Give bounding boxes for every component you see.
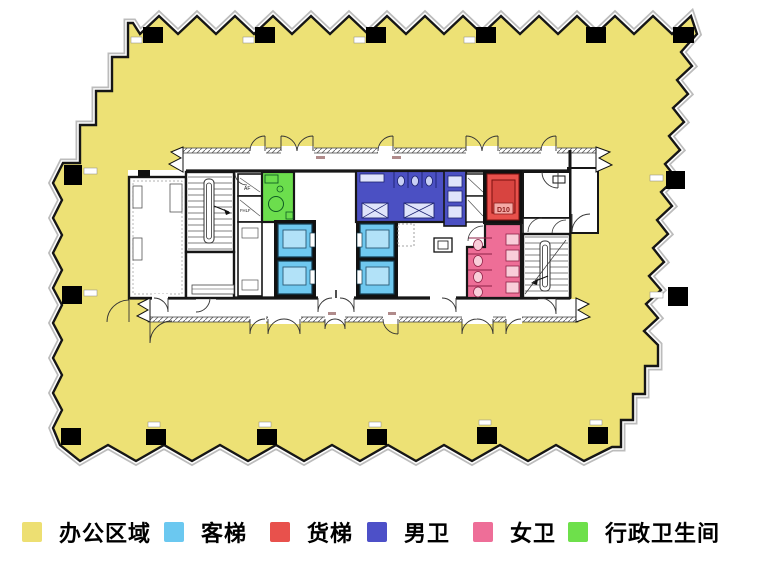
passenger-elevator-bank-east xyxy=(356,220,398,298)
exec-restroom xyxy=(262,172,294,222)
legend-label-exec-restroom: 行政卫生间 xyxy=(605,516,720,548)
freight-car-tag: D10 xyxy=(497,207,510,214)
column xyxy=(61,428,81,445)
shaft-label-fhlf: FHLF xyxy=(240,208,251,213)
passenger-elevator-bank-west xyxy=(274,220,316,298)
column xyxy=(588,427,608,444)
legend-swatch-office xyxy=(22,522,42,542)
east-vestibule xyxy=(568,168,598,233)
room-ahu xyxy=(129,170,186,298)
legend-item-womens-restroom: 女卫 xyxy=(473,516,556,548)
passenger-elevator-car xyxy=(278,224,315,257)
door-tag-mark xyxy=(392,156,401,159)
passenger-elevator-car xyxy=(278,261,315,294)
legend-label-passenger-elevator: 客梯 xyxy=(201,516,247,548)
passenger-elevator-car xyxy=(357,261,394,294)
legend: 办公区域 客梯 货梯 男卫 女卫 行政卫生间 xyxy=(0,516,758,556)
legend-label-mens-restroom: 男卫 xyxy=(404,516,450,548)
freight-elevator: D10 xyxy=(483,170,523,224)
column xyxy=(477,427,497,444)
legend-label-office: 办公区域 xyxy=(59,516,151,548)
column xyxy=(64,165,82,185)
core: AF FHLF xyxy=(107,136,612,343)
shaft-label-af: AF xyxy=(244,186,250,192)
legend-item-passenger-elevator: 客梯 xyxy=(164,516,247,548)
fire-hydrant-cabinet xyxy=(434,238,452,252)
column xyxy=(143,27,163,43)
floor-plan-page: AF FHLF xyxy=(0,0,758,568)
column xyxy=(673,27,694,43)
stairwell-west xyxy=(186,172,234,298)
column xyxy=(255,27,275,43)
column xyxy=(257,429,277,445)
legend-swatch-passenger-elevator xyxy=(164,522,184,542)
legend-label-freight-elevator: 货梯 xyxy=(307,516,353,548)
door-tag-mark xyxy=(328,312,336,315)
column xyxy=(366,27,386,43)
legend-swatch-freight-elevator xyxy=(270,522,290,542)
legend-item-mens-restroom: 男卫 xyxy=(367,516,450,548)
column xyxy=(146,429,166,445)
service-shafts: AF FHLF xyxy=(238,174,262,296)
passenger-elevator-car xyxy=(357,224,394,257)
legend-item-exec-restroom: 行政卫生间 xyxy=(568,516,720,548)
column xyxy=(668,287,688,306)
stairwell-east xyxy=(523,234,570,298)
vent-shafts xyxy=(466,174,485,222)
legend-swatch-mens-restroom xyxy=(367,522,387,542)
legend-item-freight-elevator: 货梯 xyxy=(270,516,353,548)
legend-item-office: 办公区域 xyxy=(22,516,151,548)
door-tag-mark xyxy=(388,312,396,315)
legend-swatch-womens-restroom xyxy=(473,522,493,542)
legend-label-womens-restroom: 女卫 xyxy=(510,516,556,548)
legend-swatch-exec-restroom xyxy=(568,522,588,542)
column xyxy=(62,286,82,304)
floor-plan-canvas: AF FHLF xyxy=(0,0,758,500)
column xyxy=(367,429,387,445)
column xyxy=(586,27,606,43)
mens-restroom xyxy=(356,171,466,226)
door-tag-mark xyxy=(316,156,325,159)
column xyxy=(666,171,685,189)
column xyxy=(476,27,496,43)
